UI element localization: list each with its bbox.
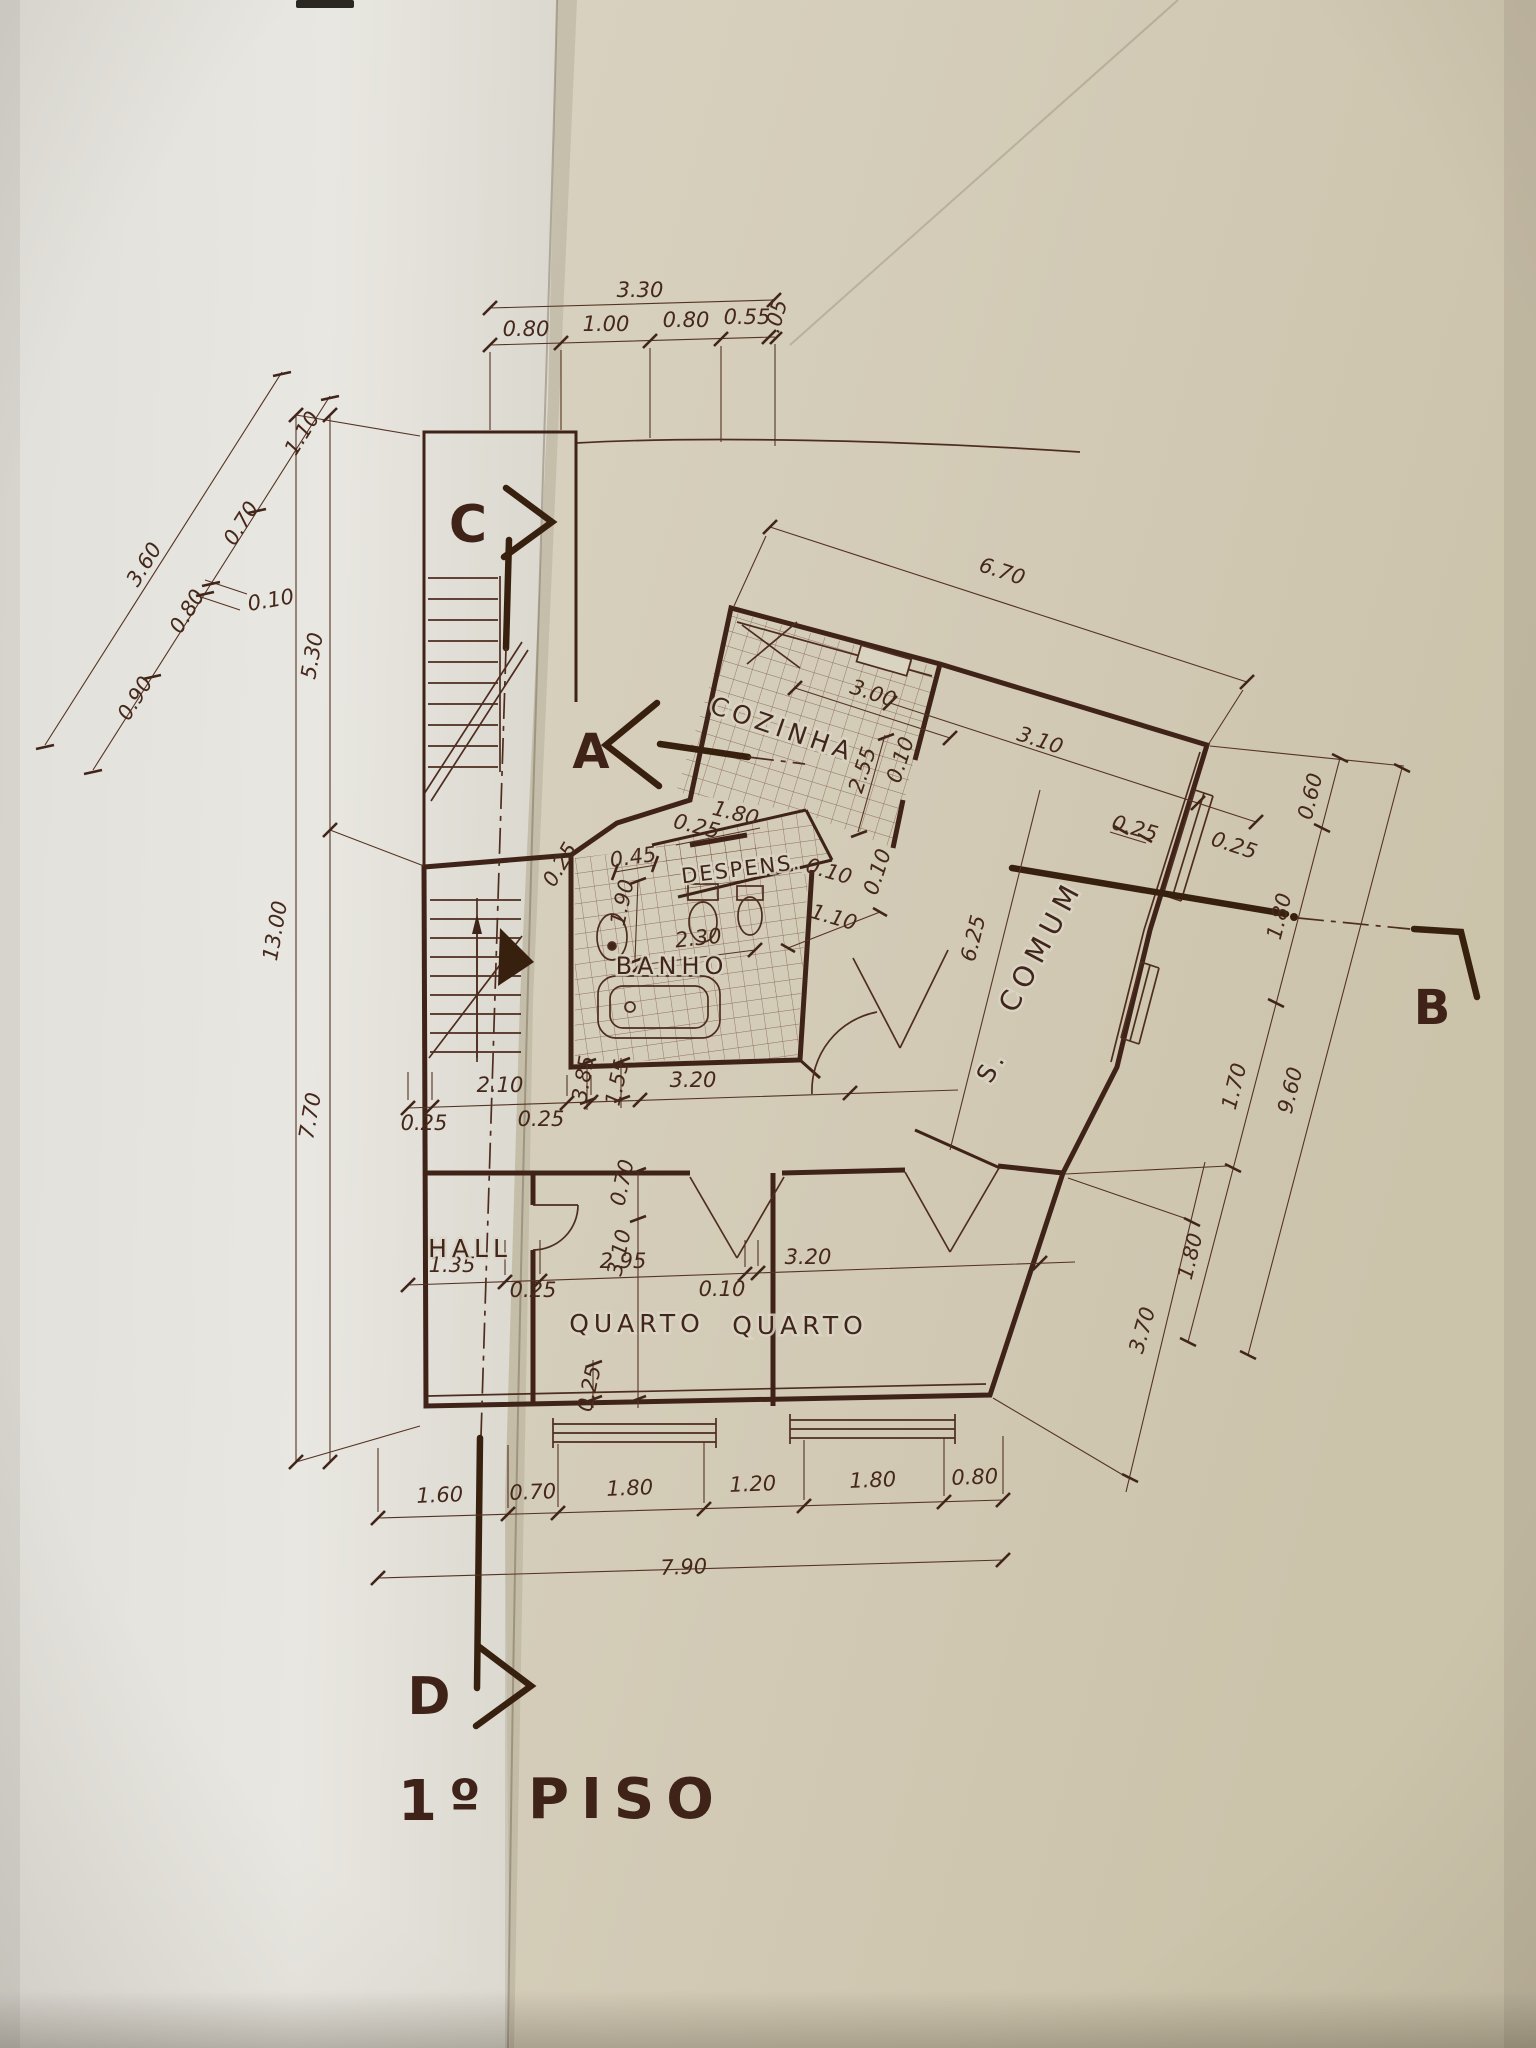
photo-of-floor-plan: 3.30 0.80 1.00 0.80 0.55 .05 3.60 1.10 0… [0, 0, 1536, 2048]
photo-vignette [0, 0, 1536, 2048]
floor-plan-drawing: 3.30 0.80 1.00 0.80 0.55 .05 3.60 1.10 0… [0, 0, 1536, 2048]
